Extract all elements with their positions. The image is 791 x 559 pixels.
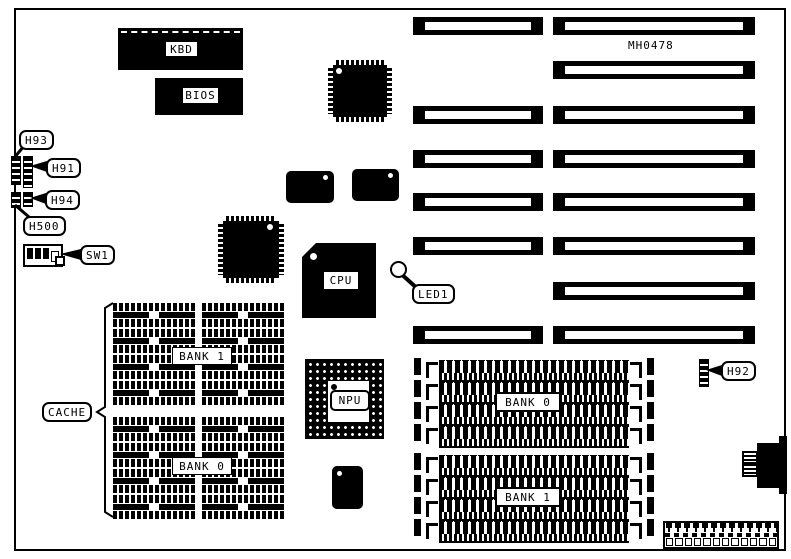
isa-slot: [553, 17, 755, 35]
cache-chip: [113, 381, 195, 405]
power-connector-tab: [779, 436, 787, 494]
simm-end-bar: [414, 453, 421, 541]
pin-row-pads: [665, 538, 777, 546]
qfp-pins-right: [387, 68, 392, 114]
cache-chip: [202, 417, 284, 441]
simm-end-bar: [647, 453, 654, 541]
simm-row: [426, 455, 642, 475]
qfp-pins-bottom: [226, 278, 276, 283]
part-number-text: MH0478: [628, 39, 674, 52]
isa-slot-ext: [413, 193, 543, 211]
qfp-pins-top: [336, 60, 384, 65]
isa-slot-ext: [413, 150, 543, 168]
isa-slot: [553, 193, 755, 211]
isa-slot: [553, 326, 755, 344]
cache-bank0-label: BANK 0: [172, 457, 232, 475]
callout-cache: CACHE: [42, 402, 92, 422]
pin1-dot: [337, 471, 342, 476]
callout-h92: H92: [721, 361, 756, 381]
npu-socket: NPU: [305, 359, 384, 439]
dram-bank1: BANK 1: [412, 453, 656, 541]
qfp-pins-bottom: [336, 117, 384, 122]
cache-chip: [113, 495, 195, 519]
simm-row: [426, 426, 642, 446]
pin1-dot: [310, 253, 317, 260]
cache-chip: [113, 303, 195, 327]
isa-slot: [553, 237, 755, 255]
cache-chip: [202, 495, 284, 519]
simm-end-bar: [414, 358, 421, 446]
power-plug-p9: [742, 464, 758, 477]
npu-label: NPU: [330, 390, 370, 411]
sw1-pos-1: [27, 248, 33, 259]
power-plug-p8: [742, 451, 758, 464]
sw1-pos-3: [43, 248, 49, 259]
isa-slot: [553, 61, 755, 79]
isa-slot: [553, 150, 755, 168]
isa-slot: [553, 282, 755, 300]
led1-indicator: [390, 261, 407, 278]
sw1-tab: [55, 256, 65, 266]
power-connector: [757, 443, 781, 488]
kbd-label: KBD: [166, 42, 197, 56]
chip-small-a: [286, 171, 334, 203]
header-h92: [699, 359, 709, 387]
bios-label: BIOS: [183, 88, 218, 103]
header-h93: [11, 156, 21, 185]
pin1-dot: [331, 384, 337, 390]
isa-slot-ext: [413, 106, 543, 124]
dram-bank1-label: BANK 1: [495, 487, 561, 507]
callout-led1: LED1: [412, 284, 455, 304]
simm-row: [426, 360, 642, 380]
header-h94: [23, 192, 33, 207]
qfp-pins-right: [279, 224, 284, 275]
cpu-label: CPU: [324, 272, 358, 289]
chip-small-b: [352, 169, 399, 201]
qfp-pins-top: [226, 216, 276, 221]
callout-h94: H94: [45, 190, 80, 210]
callout-h93: H93: [19, 130, 54, 150]
pin1-dot: [323, 175, 328, 180]
dram-bank0-label: BANK 0: [495, 392, 561, 412]
cache-chip: [202, 303, 284, 327]
cache-chip: [202, 381, 284, 405]
isa-slot-ext: [413, 237, 543, 255]
header-h500: [11, 192, 21, 208]
pin1-dot: [336, 68, 342, 74]
sw1-pos-2: [35, 248, 41, 259]
isa-slot-ext: [413, 326, 543, 344]
cache-bank1-label: BANK 1: [172, 347, 232, 365]
kbd-dashed-edge: [121, 31, 240, 33]
chip-small-c: [332, 466, 363, 509]
callout-h500: H500: [23, 216, 66, 236]
simm-end-bar: [647, 358, 654, 446]
cache-chip: [113, 417, 195, 441]
simm-row: [426, 521, 642, 541]
bottom-pin-connector: [663, 521, 779, 549]
qfp-pins-left: [218, 224, 223, 275]
callout-h91: H91: [46, 158, 81, 178]
motherboard-diagram: KBD BIOS H93 H91 H94 H500 SW1: [0, 0, 791, 559]
qfp-chip-top: [328, 60, 392, 122]
qfp-pins-left: [328, 68, 333, 114]
callout-sw1: SW1: [80, 245, 115, 265]
isa-slot-ext: [413, 17, 543, 35]
pin-row-dashes: [665, 533, 777, 537]
pin-row-stems: [665, 528, 777, 532]
isa-slot: [553, 106, 755, 124]
dram-bank0: BANK 0: [412, 358, 656, 446]
qfp-chip-left: [218, 216, 284, 283]
pin1-dot: [267, 224, 273, 230]
pin1-dot: [388, 173, 393, 178]
header-h91: [23, 156, 33, 188]
